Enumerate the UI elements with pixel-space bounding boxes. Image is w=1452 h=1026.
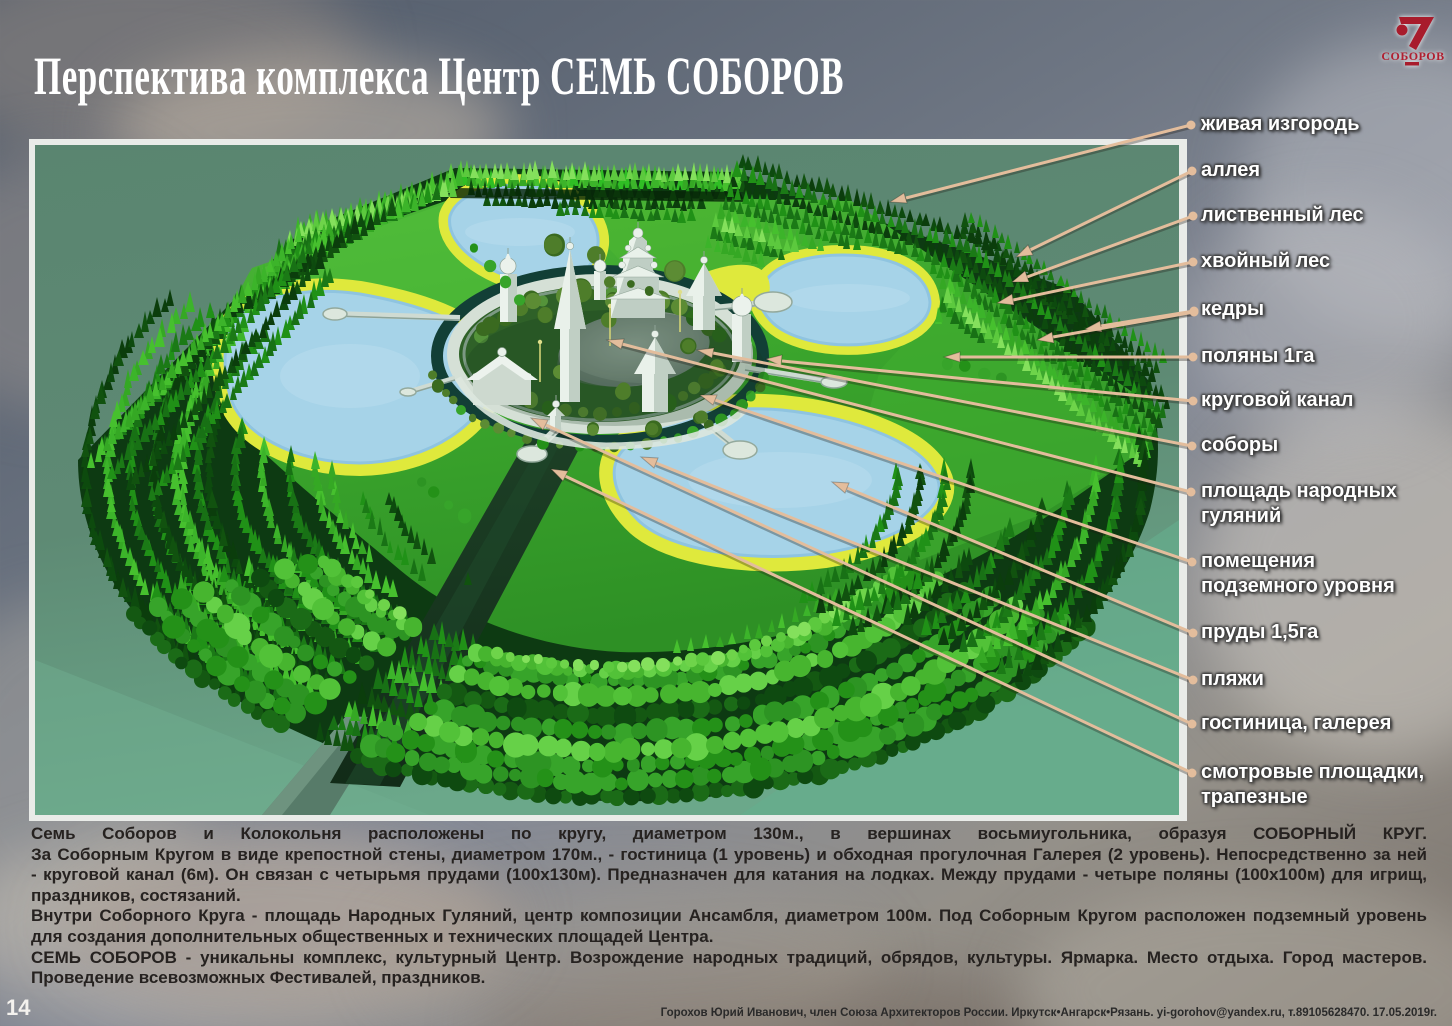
svg-text:СОБОРОВ: СОБОРОВ [1381, 49, 1444, 63]
